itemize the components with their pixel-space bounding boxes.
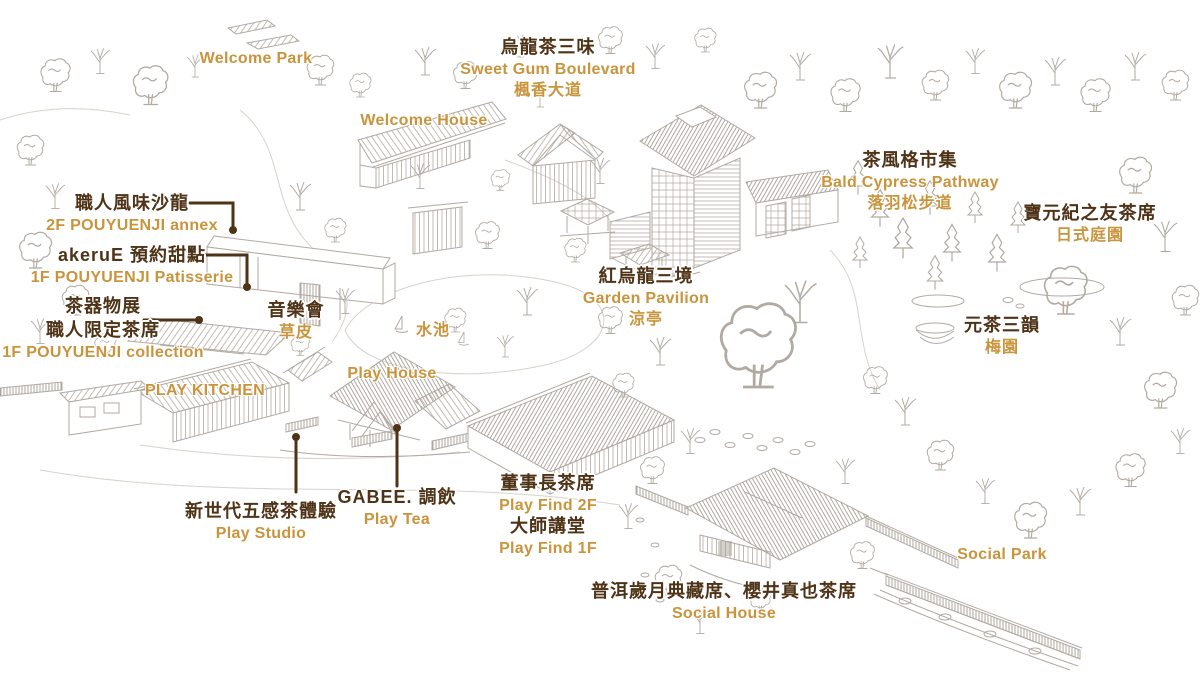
play-find-1f-zh-title: 大師講堂 — [499, 514, 597, 538]
play-tea-en-name: Play Tea — [337, 509, 456, 530]
leader-patisserie-dot — [243, 283, 251, 291]
boundary-wall — [870, 568, 1082, 670]
label-play-house: Play House — [347, 363, 436, 384]
label-play-find-1f: 大師講堂 Play Find 1F — [499, 514, 597, 559]
concert-zh-title: 音樂會 — [268, 298, 325, 322]
bald-cypress-zh-title: 茶風格市集 — [821, 148, 999, 172]
lawn-building — [408, 202, 468, 254]
play-studio-zh-title: 新世代五感茶體驗 — [185, 499, 337, 523]
leader-play-tea-dot — [393, 424, 401, 432]
social-house-zh-title: 普洱歲月典藏席、櫻井真也茶席 — [591, 579, 857, 603]
play-studio-en-name: Play Studio — [185, 523, 337, 544]
play-kitchen-name: PLAY KITCHEN — [145, 380, 265, 401]
sweet-gum-zh-title: 烏龍茶三味 — [460, 35, 636, 59]
welcome-house-name: Welcome House — [360, 110, 487, 131]
label-welcome-park: Welcome Park — [200, 48, 313, 69]
tea-park-map: Welcome Park 烏龍茶三味 Sweet Gum Boulevard 楓… — [0, 0, 1200, 675]
lawn-zh-sub: 草皮 — [268, 322, 325, 343]
patisserie-zh-title: akeruE 預約甜點 — [31, 243, 234, 267]
plum-garden-zh-title: 元茶三韻 — [964, 313, 1040, 337]
bald-cypress-en-name: Bald Cypress Pathway — [821, 172, 999, 193]
collection-zh-title-2: 職人限定茶席 — [2, 318, 204, 342]
label-social-house: 普洱歲月典藏席、櫻井真也茶席 Social House — [591, 579, 857, 624]
bald-cypress-zh-sub: 落羽松步道 — [821, 193, 999, 214]
social-park-name: Social Park — [957, 544, 1047, 565]
social-house-en-name: Social House — [591, 603, 857, 624]
left-fence — [0, 382, 62, 396]
label-pond: 水池 — [416, 320, 450, 341]
japanese-garden-zh-sub: 日式庭園 — [1024, 225, 1157, 246]
patisserie-en-name: 1F POUYUENJI Patisserie — [31, 267, 234, 288]
label-garden-pavilion: 紅烏龍三境 Garden Pavilion 涼亭 — [583, 264, 709, 330]
label-welcome-house: Welcome House — [360, 110, 487, 131]
japanese-garden-zh-title: 寶元紀之友茶席 — [1024, 201, 1157, 225]
garden-pavilion-zh-title: 紅烏龍三境 — [583, 264, 709, 288]
collection-zh-title: 茶器物展 — [2, 294, 204, 318]
leader-play-studio-dot — [292, 433, 300, 441]
welcome-park-name: Welcome Park — [200, 48, 313, 69]
label-patisserie: akeruE 預約甜點 1F POUYUENJI Patisserie — [31, 243, 234, 288]
label-sweet-gum-boulevard: 烏龍茶三味 Sweet Gum Boulevard 楓香大道 — [460, 35, 636, 101]
label-play-kitchen: PLAY KITCHEN — [145, 380, 265, 401]
annex-zh-title: 職人風味沙龍 — [46, 191, 218, 215]
plum-garden-zh-sub: 梅園 — [964, 337, 1040, 358]
label-japanese-garden: 寶元紀之友茶席 日式庭園 — [1024, 201, 1157, 246]
label-social-park: Social Park — [957, 544, 1047, 565]
label-annex: 職人風味沙龍 2F POUYUENJI annex — [46, 191, 218, 236]
label-plum-garden: 元茶三韻 梅園 — [964, 313, 1040, 358]
label-bald-cypress-pathway: 茶風格市集 Bald Cypress Pathway 落羽松步道 — [821, 148, 999, 214]
social-house-building — [636, 430, 958, 603]
annex-en-name: 2F POUYUENJI annex — [46, 215, 218, 236]
play-house-name: Play House — [347, 363, 436, 384]
label-play-tea: GABEE. 調飲 Play Tea — [337, 485, 456, 530]
welcome-park-benches — [228, 20, 299, 49]
label-collection: 茶器物展 職人限定茶席 1F POUYUENJI collection — [2, 294, 204, 363]
play-tea-zh-title: GABEE. 調飲 — [337, 485, 456, 509]
label-play-find-2f: 董事長茶席 Play Find 2F — [499, 471, 597, 516]
sweet-gum-zh-sub: 楓香大道 — [460, 80, 636, 101]
collection-en-name: 1F POUYUENJI collection — [2, 342, 204, 363]
leader-annex-dot — [229, 226, 237, 234]
center-house — [518, 124, 603, 204]
garden-pavilion-en-name: Garden Pavilion — [583, 288, 709, 309]
label-play-studio: 新世代五感茶體驗 Play Studio — [185, 499, 337, 544]
sweet-gum-en-name: Sweet Gum Boulevard — [460, 59, 636, 80]
play-find-2f-zh-title: 董事長茶席 — [499, 471, 597, 495]
pond-zh-name: 水池 — [416, 320, 450, 341]
garden-pavilion-zh-sub: 涼亭 — [583, 309, 709, 330]
label-concert-lawn: 音樂會 草皮 — [268, 298, 325, 343]
play-find-1f-en-name: Play Find 1F — [499, 538, 597, 559]
play-find-2f-en-name: Play Find 2F — [499, 495, 597, 516]
